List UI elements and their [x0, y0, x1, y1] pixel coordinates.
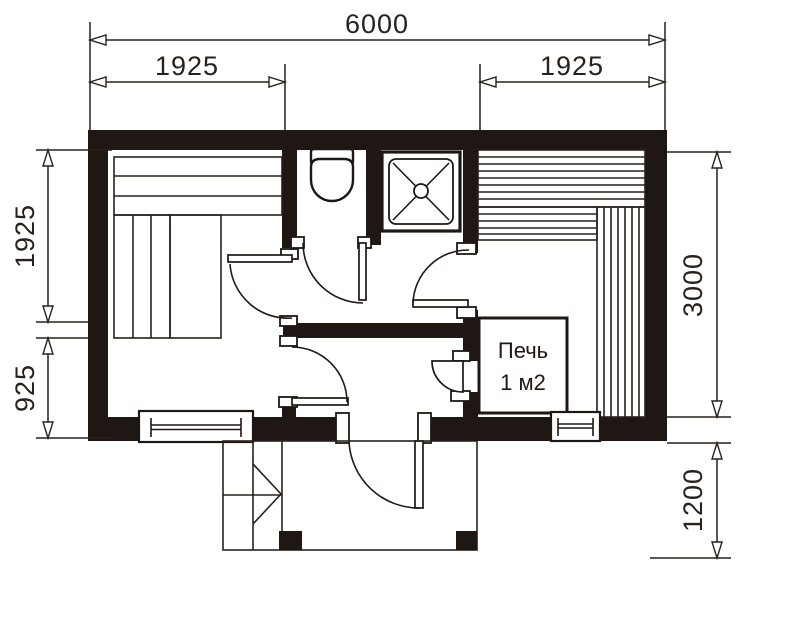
door-steam-room — [413, 250, 469, 307]
bench-top-slats — [114, 176, 282, 196]
door-swing-arc — [303, 243, 363, 303]
extension-lines — [36, 22, 731, 558]
bench-top-band — [114, 157, 282, 215]
shower-drain — [414, 184, 428, 198]
jamb — [291, 237, 304, 248]
wall-top — [88, 130, 667, 150]
window-left — [139, 411, 253, 442]
stove-label-line2: 1 м2 — [500, 370, 546, 395]
dim-right-porch-depth: 1200 — [678, 468, 708, 532]
stove-label-line1: Печь — [498, 338, 548, 363]
partition-steam-top — [463, 150, 478, 253]
dim-right-height: 3000 — [678, 253, 708, 317]
door-leaf — [415, 441, 423, 508]
porch-post-left — [279, 531, 302, 550]
toilet-icon — [311, 149, 353, 201]
shower-tray-icon — [382, 152, 460, 231]
wall-left — [88, 130, 108, 441]
steam-bench-wall-slats — [604, 207, 639, 417]
partition-wc-left — [282, 150, 297, 248]
stove-body — [479, 318, 567, 413]
floor-plan-page: Печь 1 м2 — [0, 0, 800, 640]
door-wc — [303, 243, 366, 303]
stairs-treads — [223, 441, 282, 550]
door-entry — [349, 441, 423, 508]
door-leaf — [359, 243, 366, 300]
door-restroom-vestibule — [292, 347, 348, 405]
dim-top-total: 6000 — [345, 9, 409, 39]
partition-wc-right — [366, 150, 381, 245]
window-right — [551, 412, 600, 441]
door-swing-arc — [349, 442, 419, 508]
steam-bench-lower-slats — [478, 214, 597, 234]
dimension-lines — [48, 40, 717, 558]
steam-bench-lower — [478, 207, 597, 240]
bench-side — [114, 215, 170, 338]
bench-platform — [170, 215, 221, 338]
door-swing-arc — [413, 250, 469, 303]
bench-side-slats — [133, 215, 151, 338]
door-leaf — [228, 255, 292, 262]
stove: Печь 1 м2 — [479, 318, 567, 413]
jamb — [457, 307, 476, 318]
dim-left-upper: 1925 — [10, 204, 40, 268]
dim-top-right-bay: 1925 — [540, 51, 604, 81]
entry-opening — [348, 415, 419, 443]
door-leaf — [432, 361, 463, 392]
stairs-direction-arrow-icon — [253, 464, 281, 524]
porch — [223, 441, 477, 550]
jamb — [336, 413, 349, 443]
window-left-frame — [139, 411, 253, 442]
dim-top-left-bay: 1925 — [155, 51, 219, 81]
wall-right — [645, 130, 667, 441]
jamb — [418, 413, 431, 443]
door-leaf — [413, 300, 468, 307]
jamb — [453, 351, 470, 361]
jamb — [457, 243, 476, 254]
steam-bench-upper-slats — [478, 157, 645, 199]
porch-post-right — [456, 531, 477, 550]
door-swing-arc — [292, 347, 347, 402]
rest-room-benches — [114, 157, 282, 338]
door-restroom-washroom — [228, 255, 292, 318]
jamb — [280, 336, 297, 346]
dimensions: 6000 1925 1925 1925 925 3000 1200 — [10, 9, 731, 558]
dimension-arrows — [43, 35, 722, 558]
door-swing-arc — [230, 264, 292, 318]
partition-hall — [283, 323, 463, 338]
dim-left-lower: 925 — [10, 364, 40, 412]
doors — [228, 237, 476, 508]
door-stove-hatch — [432, 361, 463, 392]
floor-plan-canvas: Печь 1 м2 — [0, 0, 800, 640]
toilet-bowl — [311, 159, 353, 201]
door-leaf — [292, 398, 348, 405]
